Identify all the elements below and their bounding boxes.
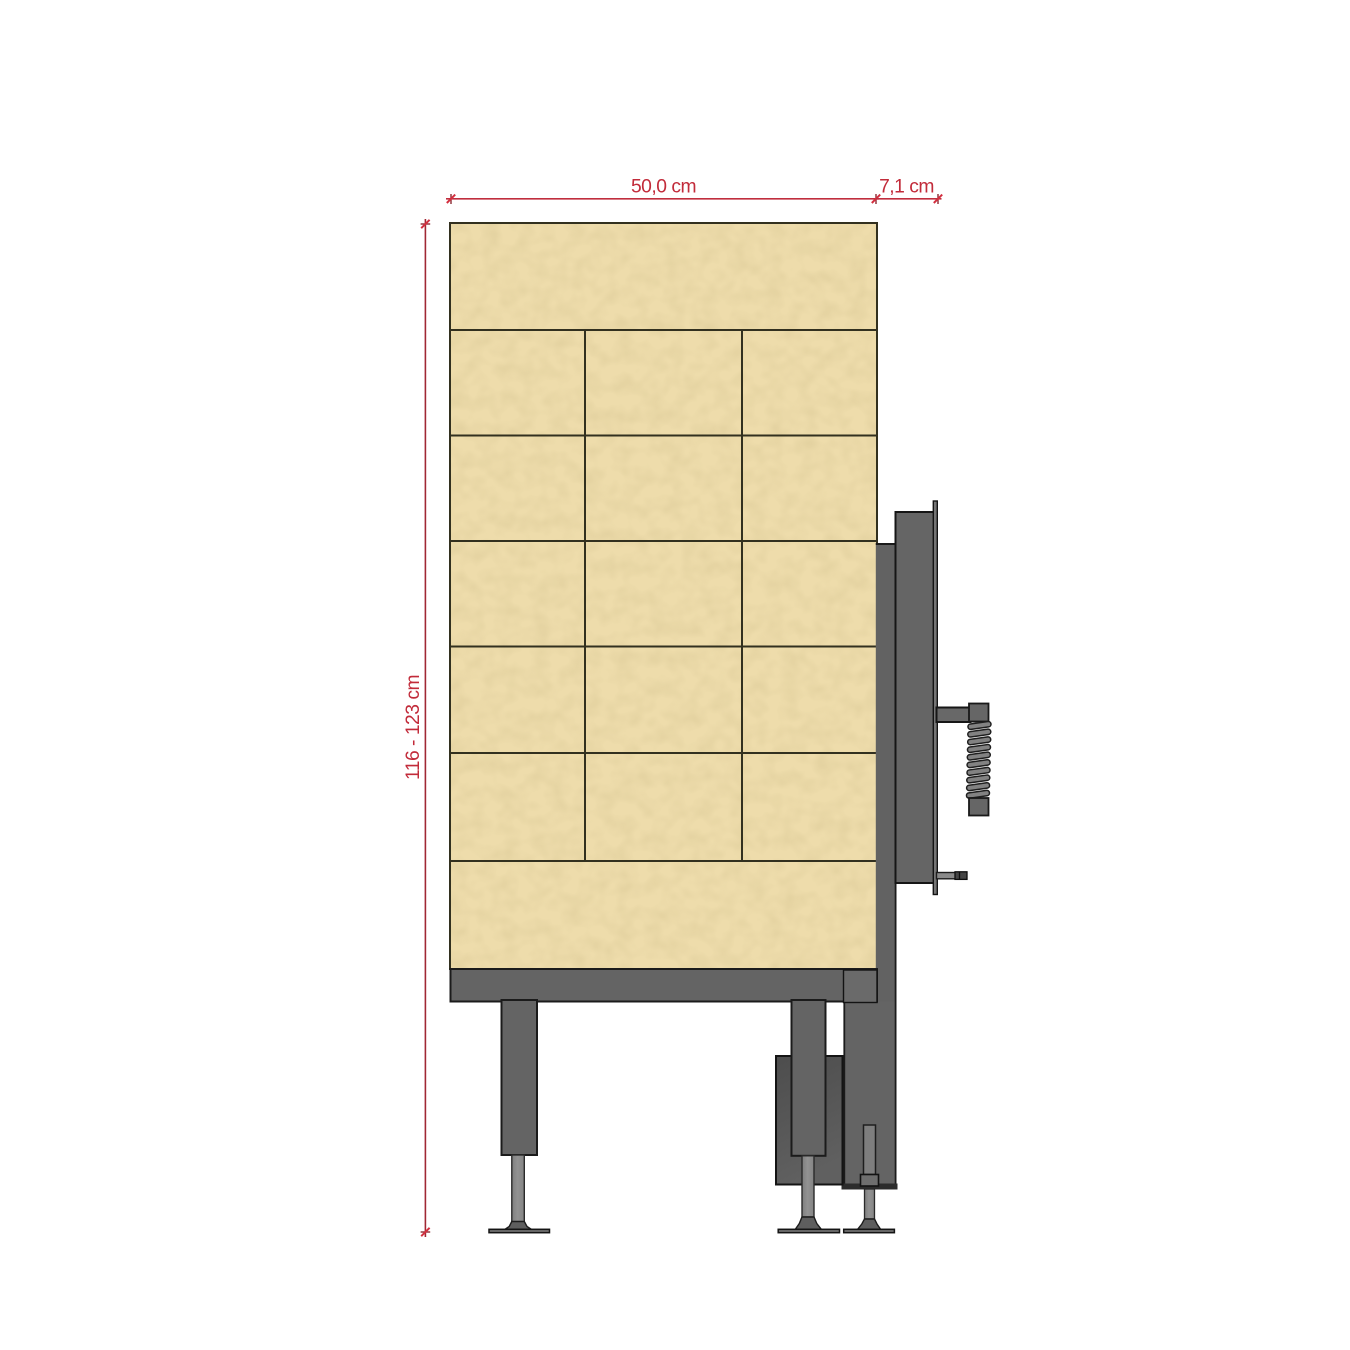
svg-text:116 - 123 cm: 116 - 123 cm bbox=[403, 675, 424, 780]
svg-text:50,0 cm: 50,0 cm bbox=[631, 177, 696, 198]
svg-text:7,1 cm: 7,1 cm bbox=[879, 177, 934, 198]
